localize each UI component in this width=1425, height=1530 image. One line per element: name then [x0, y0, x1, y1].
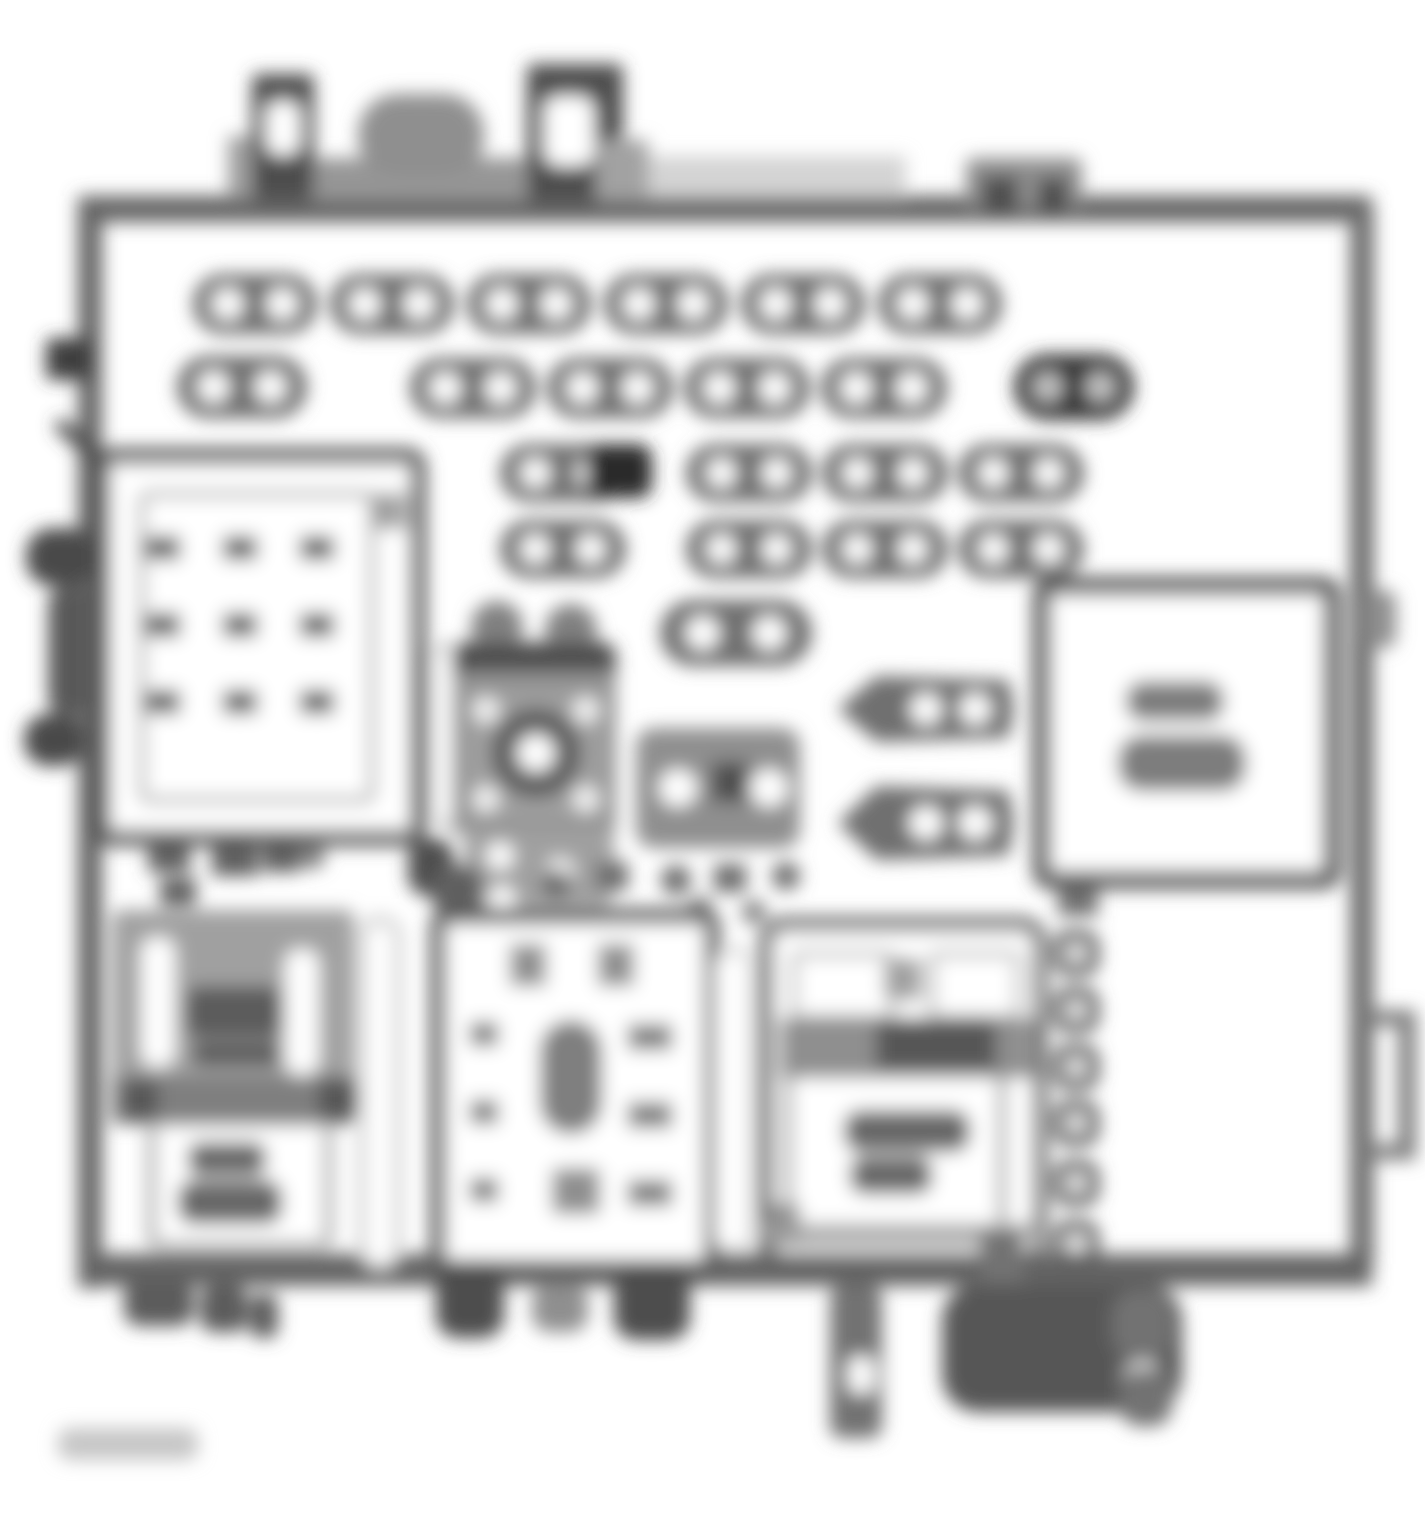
pin-column-top: [1058, 888, 1098, 916]
pin-column-terminal-hole: [1066, 1000, 1086, 1020]
right-border-bump: [1366, 590, 1396, 648]
bottomleft-bar: [192, 1042, 280, 1066]
fuse-row-4-hole: [520, 534, 550, 564]
mini-block-pin: [712, 762, 748, 802]
center-relay-corner-dot: [573, 697, 599, 723]
fuse-row-2-right: [547, 358, 673, 418]
bottomleft-slot: [284, 948, 320, 1076]
pointed-fuse-hole: [958, 806, 992, 840]
bottomcenter-square: [552, 1168, 600, 1214]
midband-dot: [742, 900, 766, 924]
pointed-fuse-hole: [909, 806, 943, 840]
midband-pin: [148, 838, 190, 872]
mount-tab-right-step: [596, 140, 648, 200]
fuse-row-1-hole: [540, 288, 572, 320]
relay-block-pin: [223, 613, 257, 637]
fuse-row-1-hole: [897, 288, 929, 320]
fuse-row-2-dark: [1014, 354, 1134, 420]
terminal-box-bar: [1118, 735, 1246, 791]
fuse-row-2-right: [821, 358, 947, 418]
fuse-block-diagram: [0, 0, 1425, 1530]
fuse-row-2-right-hole: [622, 372, 654, 404]
bottomleft-slot: [140, 936, 176, 1068]
fuse-row-2-left-hole: [197, 371, 229, 403]
fuse-row-5-hole: [752, 616, 786, 650]
bottomcenter-top-pin: [510, 944, 546, 986]
center-relay-corner-dot: [473, 786, 499, 812]
fuse-row-2-right-hole: [566, 372, 598, 404]
midband-dot: [661, 865, 691, 895]
bottomcenter-pin-wide: [628, 1024, 672, 1050]
fuse-row-3-hole: [520, 458, 550, 488]
relay-block-pin: [300, 690, 334, 714]
pin-column-terminal-hole: [1066, 1057, 1086, 1077]
bottomleft-foot: [124, 1280, 194, 1326]
bottomright-blob: [876, 1020, 996, 1078]
mini-block-hole: [750, 769, 788, 807]
fuse-row-1-hole: [760, 288, 792, 320]
fuse-row-2-right-hole: [759, 372, 791, 404]
bottomcenter-oval: [540, 1020, 602, 1134]
bottomcenter-pin-wide: [628, 1102, 672, 1128]
pin-column-terminal-hole: [1066, 1173, 1086, 1193]
fuse-row-5-hole: [686, 616, 720, 650]
bottomright-box-bar: [844, 1110, 970, 1152]
fuse-row-1-hole: [623, 288, 655, 320]
fuse-row-2-left-hole: [255, 371, 287, 403]
midband-pin: [262, 840, 300, 872]
bottom-stem: [980, 1230, 1024, 1292]
fuse-row-1: [467, 274, 591, 334]
outer-right-border: [1350, 208, 1374, 1264]
fuse-row-2-right: [410, 358, 536, 418]
bottomright-tab: [884, 958, 922, 1000]
fuse-row-1: [193, 274, 317, 334]
bottomright-window: [932, 954, 1018, 1018]
pin-column-terminal-hole: [1066, 943, 1086, 963]
relay-block-pin: [146, 536, 180, 560]
center-relay-tail-hole: [489, 885, 515, 911]
fuse-row-1-hole: [212, 288, 244, 320]
fuse-row-1-hole: [349, 288, 381, 320]
fuse-row-4: [500, 520, 626, 578]
bottomcenter-slot: [714, 950, 752, 1252]
bottomleft-box-bar: [178, 1180, 282, 1224]
fuse-row-3-hole: [898, 458, 928, 488]
fuse-row-2-dark-hole: [1085, 372, 1115, 402]
fuse-row-2-right-hole: [485, 372, 517, 404]
fuse-row-4-hole: [706, 534, 736, 564]
fuse-row-4: [958, 520, 1084, 578]
relay-block-notch: [372, 493, 406, 529]
fuse-row-1-hole: [486, 288, 518, 320]
fuse-row-1-hole: [814, 288, 846, 320]
fuse-row-2-left: [177, 356, 307, 418]
fuse-row-1: [741, 274, 865, 334]
fuse-row-3-hole: [762, 458, 792, 488]
relay-block-pin: [300, 536, 334, 560]
pin-column-terminal-hole: [1066, 1113, 1086, 1133]
bottom-tab-hole: [848, 1356, 874, 1394]
fuse-row-4-hole: [762, 534, 792, 564]
center-relay-tail-hole: [486, 842, 514, 870]
fuse-row-2-right-hole: [896, 372, 928, 404]
bottomleft-bump: [124, 1078, 158, 1120]
fuse-row-1: [330, 274, 454, 334]
part-number-smudge: [58, 1428, 198, 1460]
midband-pin: [596, 862, 628, 890]
fuse-row-1-hole: [403, 288, 435, 320]
center-relay-corner-dot: [473, 697, 499, 723]
bottomleft-foot: [250, 1294, 278, 1338]
fuse-row-1: [878, 274, 1002, 334]
fuse-row-2-right-hole: [840, 372, 872, 404]
fuse-row-4-hole: [576, 534, 606, 564]
mount-tab-small-pin: [982, 176, 1018, 212]
midband-pin: [212, 842, 258, 876]
fuse-row-2-right: [684, 358, 810, 418]
bottomleft-bar: [186, 986, 282, 1038]
fuse-row-4-hole: [1034, 534, 1064, 564]
bottomcenter-foot-mid: [532, 1284, 588, 1332]
left-edge-blob: [26, 528, 96, 586]
bottomcenter-pin: [470, 1100, 498, 1124]
relay-block-pin: [223, 690, 257, 714]
midband-pin: [714, 864, 746, 892]
fuse-row-3-hole: [1034, 458, 1064, 488]
right-hook-bottom: [1364, 1144, 1414, 1160]
bottomright-box-bar: [850, 1156, 932, 1194]
fuse-row-3-dark-blob: [586, 444, 652, 498]
fuse-row-4: [822, 520, 948, 578]
center-relay-ring-hole: [517, 734, 555, 772]
bottomcenter-pin: [470, 1022, 498, 1046]
pin-column-terminal-hole: [1066, 1233, 1086, 1253]
bottomcenter-foot: [614, 1264, 690, 1340]
bottomleft-bump: [318, 1078, 356, 1120]
outer-bottom-border: [78, 1254, 1372, 1286]
fuse-row-4-hole: [842, 534, 872, 564]
bottomcenter-top-pin: [598, 944, 634, 986]
bracket-blob: [358, 94, 484, 178]
fuse-row-3: [686, 444, 812, 502]
center-relay-tail: [464, 830, 614, 906]
fuse-row-1: [604, 274, 728, 334]
fuse-row-1-hole: [951, 288, 983, 320]
fuse-row-3-hole: [842, 458, 872, 488]
midband-pin: [160, 878, 196, 906]
mount-tab-right-hole: [544, 96, 594, 166]
bottomleft-foot: [200, 1286, 248, 1332]
bracket-wash: [624, 156, 906, 200]
fuse-row-2-right-hole: [703, 372, 735, 404]
fuse-row-3-hole: [706, 458, 736, 488]
relay-block-pin: [300, 613, 334, 637]
bottomcenter-pin: [470, 1178, 498, 1202]
pointed-fuse-hole: [959, 693, 991, 725]
fuse-row-4-hole: [978, 534, 1008, 564]
fuse-row-3: [958, 444, 1084, 502]
terminal-box: [1042, 586, 1332, 880]
left-edge-square: [46, 338, 92, 380]
bottomcenter-foot: [436, 1260, 504, 1338]
midband-dot: [299, 843, 325, 869]
center-relay-corner-dot: [573, 786, 599, 812]
relay-block-pin: [146, 613, 180, 637]
pointed-fuse-hole: [910, 693, 942, 725]
mount-tab-left-hole: [266, 101, 300, 155]
bottomcenter-pin-wide: [628, 1180, 672, 1206]
fuse-row-1-hole: [677, 288, 709, 320]
fuse-row-2-dark-hole: [1033, 372, 1063, 402]
bottom-lump: [1112, 1290, 1172, 1360]
bottomleft-tall-slot: [362, 920, 398, 1268]
bottomleft-box-bar: [188, 1142, 266, 1176]
fuse-row-4: [686, 520, 812, 578]
left-edge-blob: [24, 714, 84, 766]
left-edge-bar: [48, 586, 88, 716]
relay-block-pin: [223, 536, 257, 560]
mount-tab-small-pin: [1038, 178, 1068, 212]
mini-block-hole: [659, 769, 697, 807]
terminal-box-bar: [1126, 681, 1224, 721]
midband-dot: [541, 869, 571, 899]
midband-dot: [772, 862, 800, 890]
right-hook-side: [1398, 1010, 1416, 1160]
fuse-block-diagram-page: [0, 0, 1425, 1530]
midband-blob: [432, 866, 482, 914]
fuse-row-3: [822, 444, 948, 502]
fuse-row-3-hole: [978, 458, 1008, 488]
relay-block-pin: [146, 690, 180, 714]
fuse-row-1-hole: [266, 288, 298, 320]
bottomright-window: [794, 954, 892, 1018]
fuse-row-5: [660, 600, 812, 666]
fuse-row-4-hole: [898, 534, 928, 564]
bottom-lump: [1120, 1368, 1172, 1426]
fuse-row-2-right-hole: [429, 372, 461, 404]
